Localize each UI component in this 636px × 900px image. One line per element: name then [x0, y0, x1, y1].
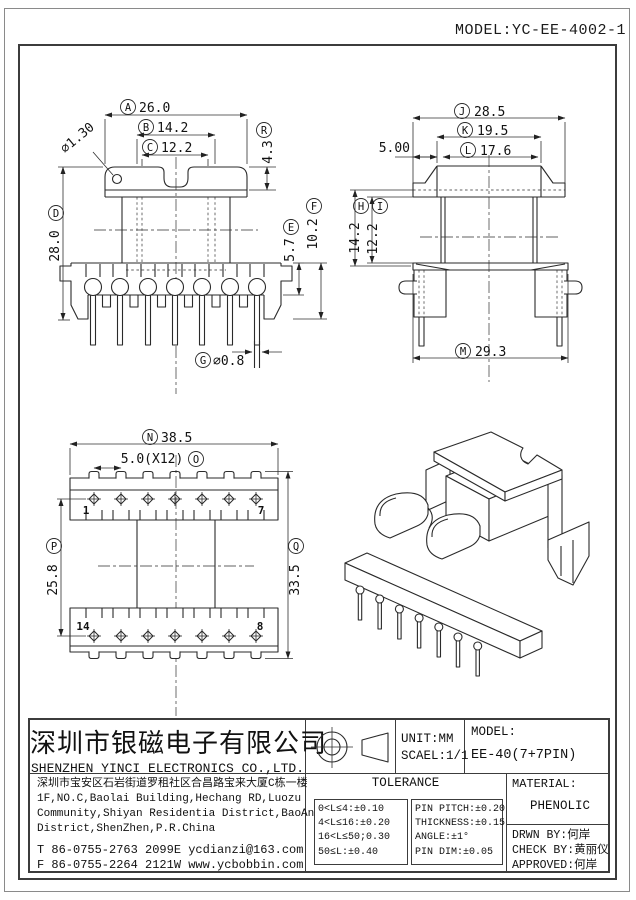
tolerance-row: THICKNESS:±0.15: [415, 817, 499, 831]
tolerance-row: 0<L≤4:±0.10: [318, 803, 404, 817]
front-dim-R: R 4.3: [249, 123, 276, 191]
dim-letter: G: [200, 355, 206, 367]
company-name-cn: 深圳市银磁电子有限公司: [30, 723, 305, 760]
address-cn: 深圳市宝安区石岩街道罗租社区合昌路宝来大厦C栋一楼: [37, 777, 303, 792]
unit-scale-cell: UNIT:MM SCAEL:1/1: [401, 731, 464, 773]
pin-number-1: 1: [83, 504, 90, 517]
front-dim-G: G ⌀0.8: [196, 352, 283, 369]
front-view: A 26.0 B 14.2 C 12.2 ⌀1.30: [38, 98, 338, 408]
dim-value: ⌀0.8: [213, 354, 244, 369]
side-view: J 28.5 K 19.5 L 17.6 5.00: [340, 98, 595, 383]
dim-value: 17.6: [480, 144, 511, 159]
dim-value: 28.0: [48, 230, 63, 261]
tolerance-row: ANGLE:±1°: [415, 831, 499, 845]
dim-value: 10.2: [306, 218, 321, 249]
sheet-model-number: MODEL:YC-EE-4002-1: [455, 22, 626, 39]
bottom-view: N 38.5 5.0(X12) O 1 7: [35, 428, 315, 723]
dim-value: 33.5: [288, 564, 303, 595]
front-dim-C: C 12.2: [142, 140, 208, 167]
iso-bobbin: [345, 432, 589, 676]
dim-letter: D: [53, 208, 59, 220]
tolerance-row: PIN PITCH:±0.20: [415, 803, 499, 817]
check-by: CHECK BY:黄丽仪: [512, 843, 610, 858]
dim-value: 5.7: [283, 238, 298, 261]
side-dim-L: L 17.6: [443, 143, 538, 160]
side-bottom-flange: [399, 263, 582, 346]
dim-value: 26.0: [139, 101, 170, 116]
phone: T 86-0755-2763 2099: [37, 843, 174, 858]
dim-value: 29.3: [475, 345, 506, 360]
dim-value: 25.8: [46, 564, 61, 595]
dim-letter: C: [147, 142, 153, 154]
isometric-view: [335, 420, 600, 710]
tolerance-title: TOLERANCE: [305, 776, 506, 790]
tolerance-row: PIN DIM:±0.05: [415, 846, 499, 860]
dim-value: 14.2: [348, 222, 363, 253]
address-en-2: Community,Shiyan Residentia District,Bao…: [37, 807, 303, 822]
front-dim-F: F 10.2: [293, 199, 327, 320]
bottom-bottom-row: 14 8: [70, 608, 278, 659]
dim-letter: J: [459, 106, 465, 118]
scale: SCAEL:1/1: [401, 748, 464, 765]
model-label: MODEL:: [471, 725, 611, 739]
material-value: PHENOLIC: [512, 799, 608, 813]
side-dim-wing: 5.00: [379, 141, 437, 157]
dim-letter: I: [377, 201, 383, 213]
dim-value: 5.0(X12): [121, 452, 184, 467]
company-cell: 深圳市银磁电子有限公司 SHENZHEN YINCI ELECTRONICS C…: [30, 723, 305, 773]
drawn-by: DRWN BY:何岸: [512, 828, 610, 843]
bottom-top-row: 1 7: [70, 472, 278, 521]
pin-number-7: 7: [258, 504, 265, 517]
dim-value: 38.5: [161, 431, 192, 446]
dim-letter: O: [193, 454, 199, 466]
tolerance-cell: TOLERANCE 0<L≤4:±0.10 4<L≤16:±0.20 16<L≤…: [305, 773, 506, 871]
dim-letter: R: [261, 125, 268, 137]
dim-letter: H: [358, 201, 364, 213]
dim-value: 19.5: [477, 124, 508, 139]
tolerance-row: 50≤L:±0.40: [318, 846, 404, 860]
projection-symbol-cell: [305, 720, 395, 773]
material-label: MATERIAL:: [512, 777, 608, 791]
dim-letter: M: [460, 346, 466, 358]
dim-value: 12.2: [161, 141, 192, 156]
dim-letter: Q: [293, 541, 299, 553]
dim-letter: K: [462, 125, 469, 137]
approved-by: APPROVED:何岸: [512, 858, 610, 873]
dim-letter: N: [147, 432, 153, 444]
fax: F 86-0755-2264 2121: [37, 858, 174, 873]
pin-number-14: 14: [76, 620, 90, 633]
side-dim-I: I 12.2: [366, 197, 413, 263]
unit: UNIT:MM: [401, 731, 464, 748]
title-block: 深圳市银磁电子有限公司 SHENZHEN YINCI ELECTRONICS C…: [28, 718, 610, 873]
tolerance-general-box: 0<L≤4:±0.10 4<L≤16:±0.20 16<L≤50;0.30 50…: [314, 799, 408, 865]
dim-letter: E: [288, 222, 294, 234]
hole-value: ⌀1.30: [58, 120, 98, 157]
email: E ycdianzi@163.com: [174, 843, 304, 858]
address-en-1: 1F,NO.C,Baolai Building,Hechang RD,Luozu: [37, 792, 303, 807]
dim-value: 28.5: [474, 105, 505, 120]
dim-value: 12.2: [366, 223, 381, 254]
company-name-en: SHENZHEN YINCI ELECTRONICS CO.,LTD.: [30, 761, 305, 776]
drawing-sheet: MODEL:YC-EE-4002-1 A 26.0 B 14.2: [0, 0, 636, 900]
website: W www.ycbobbin.com: [174, 858, 304, 873]
side-dim-M: M 29.3: [413, 274, 568, 363]
model-value: EE-40(7+7PIN): [471, 748, 611, 763]
dim-letter: P: [51, 541, 57, 553]
third-angle-projection-icon: [305, 720, 395, 773]
address-cell: 深圳市宝安区石岩街道罗租社区合昌路宝来大厦C栋一楼 1F,NO.C,Baolai…: [37, 777, 303, 871]
material-cell: MATERIAL: PHENOLIC: [512, 777, 608, 824]
tolerance-row: 4<L≤16:±0.20: [318, 817, 404, 831]
model-cell: MODEL: EE-40(7+7PIN): [471, 725, 611, 773]
dim-value: 14.2: [157, 121, 188, 136]
pin-number-8: 8: [257, 620, 264, 633]
dim-letter: B: [143, 122, 149, 134]
dim-letter: A: [125, 102, 132, 114]
front-dim-E: E 5.7: [283, 220, 304, 296]
tolerance-specific-box: PIN PITCH:±0.20 THICKNESS:±0.15 ANGLE:±1…: [411, 799, 503, 865]
dim-value: 5.00: [379, 141, 410, 156]
dim-letter: L: [465, 145, 471, 157]
address-en-3: District,ShenZhen,P.R.China: [37, 822, 303, 837]
dim-value: 4.3: [261, 140, 276, 163]
tolerance-row: 16<L≤50;0.30: [318, 831, 404, 845]
signature-cell: DRWN BY:何岸 CHECK BY:黄丽仪 APPROVED:何岸: [512, 828, 610, 871]
dim-letter: F: [311, 201, 317, 213]
